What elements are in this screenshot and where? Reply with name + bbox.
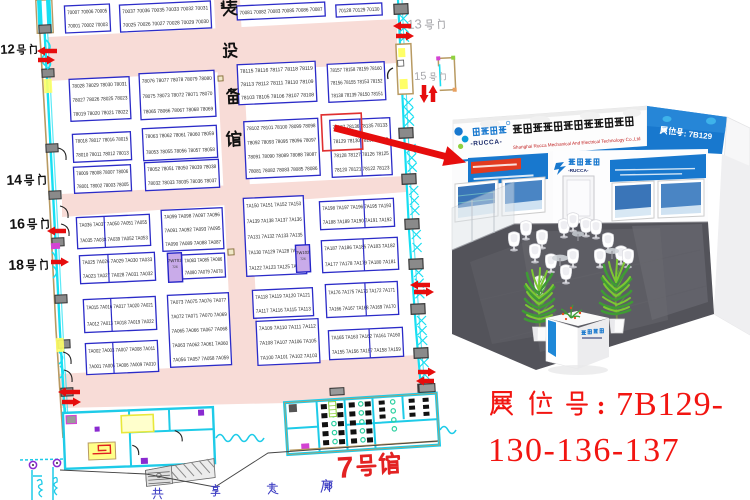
svg-text:7WT01: 7WT01	[168, 258, 182, 264]
svg-text:14: 14	[6, 171, 23, 188]
svg-text:726: 726	[172, 265, 178, 269]
svg-text:18: 18	[8, 256, 25, 273]
svg-text:726: 726	[300, 257, 306, 261]
svg-text:7B129-: 7B129-	[616, 386, 724, 423]
svg-text:12: 12	[0, 41, 15, 57]
svg-text:130-136-137: 130-136-137	[488, 432, 680, 469]
svg-text:15: 15	[414, 70, 427, 83]
svg-text:16: 16	[9, 215, 26, 232]
svg-text:-RUCCA-: -RUCCA-	[568, 168, 589, 174]
svg-text:7W102: 7W102	[296, 250, 310, 256]
svg-text:7: 7	[336, 451, 354, 485]
